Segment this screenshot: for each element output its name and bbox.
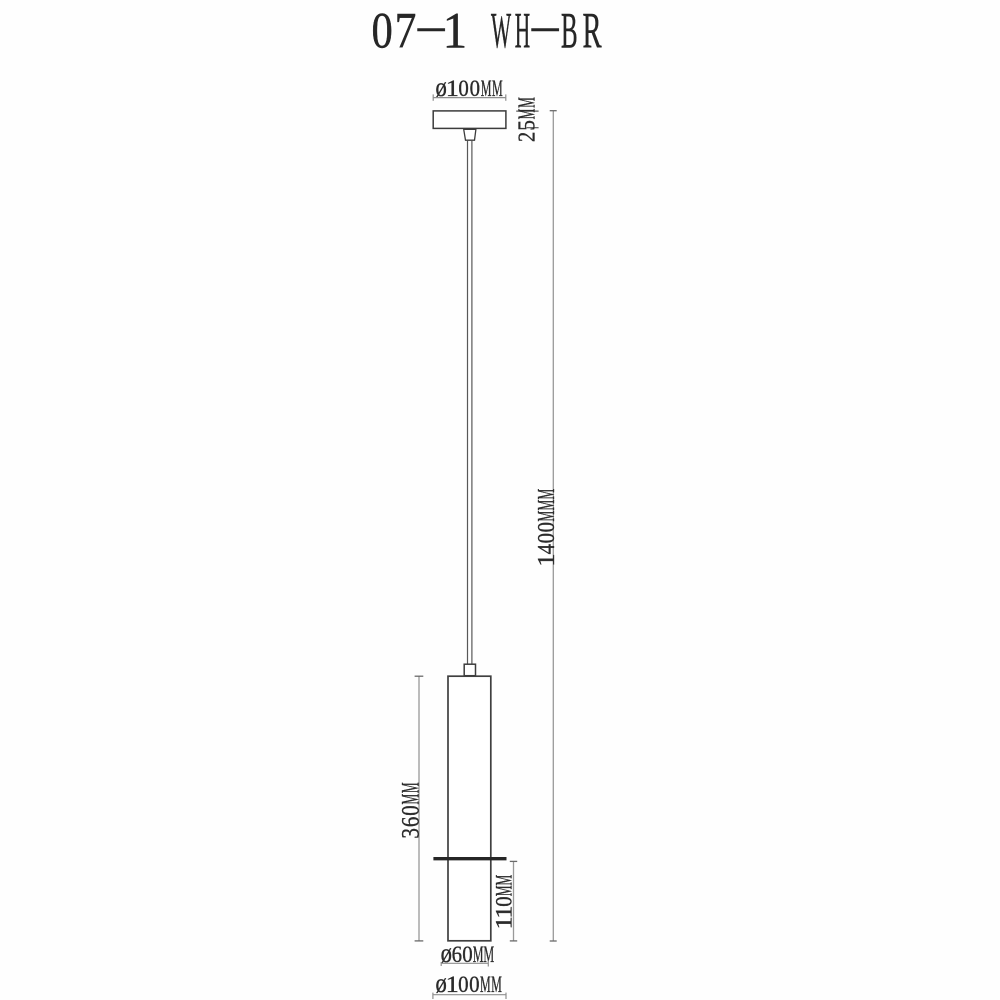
svg-text:ø100MM: ø100MM bbox=[436, 968, 502, 998]
svg-text:1400MMM: 1400MMM bbox=[534, 489, 560, 567]
svg-text:25MM: 25MM bbox=[514, 97, 540, 142]
svg-text:110MM: 110MM bbox=[492, 875, 518, 930]
svg-text:360MM: 360MM bbox=[397, 782, 424, 838]
